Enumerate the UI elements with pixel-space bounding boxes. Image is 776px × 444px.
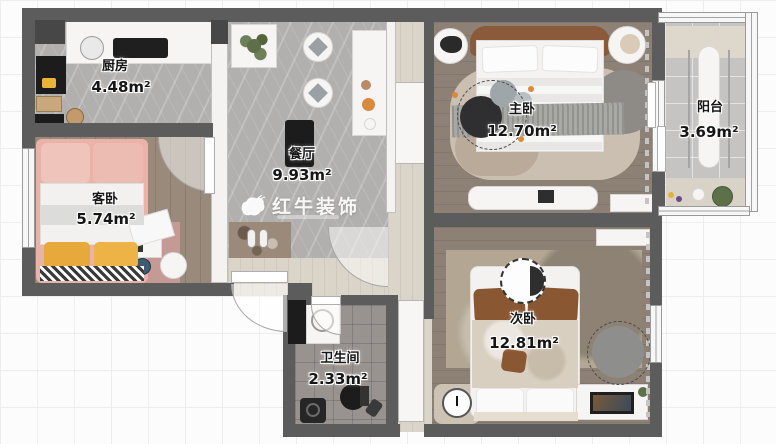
window-balcony-right — [745, 12, 758, 212]
kitchen-area: 4.48m² — [91, 78, 150, 96]
wall-master-left — [424, 22, 434, 213]
bathroom-area: 2.33m² — [308, 370, 367, 388]
slipper-icon — [247, 229, 256, 248]
balcony-toy — [668, 192, 674, 198]
entry-door-leaf — [231, 271, 288, 283]
watermark-tagline — [277, 215, 339, 219]
floor-plan: 厨房 4.48m² 餐厅 9.93m² 客卧 5.74m² 主卧 12.70m²… — [0, 0, 776, 444]
yellow-pillow — [94, 242, 138, 268]
window-balcony-top — [658, 12, 750, 23]
second-bedroom-area: 12.81m² — [489, 334, 559, 352]
balcony-toy — [676, 196, 682, 202]
wall-south-left — [22, 283, 234, 296]
master-pillow — [542, 45, 599, 73]
guest-bedroom-area: 5.74m² — [76, 210, 135, 228]
bath-door-leaf — [311, 296, 341, 305]
clock-hand — [456, 396, 458, 406]
second-bedroom-label: 次卧 — [510, 308, 536, 327]
food-plate — [361, 80, 371, 90]
wall-stub-kitchen-top — [211, 20, 228, 44]
wall-kitchen-guest — [35, 123, 213, 137]
dining-area: 9.93m² — [272, 166, 331, 184]
washer-drum — [306, 403, 320, 417]
fridge — [36, 56, 66, 94]
fridge-food — [42, 78, 56, 88]
master-bedroom-label: 主卧 — [509, 98, 535, 117]
slider-panel — [647, 82, 656, 128]
window-second-right — [650, 305, 662, 363]
tv-screen — [593, 395, 631, 411]
empty-plate — [364, 118, 376, 130]
master-pillow — [482, 45, 539, 73]
guest-bedroom-label: 客卧 — [92, 188, 118, 207]
dining-label: 餐厅 — [289, 143, 315, 162]
shag-rug-fringe — [587, 321, 651, 385]
toilet-tank — [360, 386, 369, 406]
hanging-chair — [160, 252, 187, 279]
plant-icon — [238, 30, 270, 62]
utility-closet — [398, 300, 424, 422]
bench-laptop-icon — [538, 190, 554, 203]
ac-unit — [596, 229, 650, 246]
guest-bed-pink-pillow — [93, 143, 143, 183]
yellow-pillow — [44, 242, 90, 268]
wall-second-left — [424, 227, 434, 319]
balcony-plate — [692, 188, 705, 201]
wall-second-bottom — [424, 424, 662, 437]
guest-door-leaf — [204, 137, 215, 194]
kitchen-corner-cabinet — [35, 20, 65, 44]
guest-bed-pink-pillow — [41, 143, 90, 183]
wall-bath-bottom — [283, 424, 400, 437]
window-balcony-bottom — [658, 206, 750, 216]
wall-mid-horizontal — [424, 213, 662, 227]
nightstand-pillow — [620, 34, 640, 54]
slider-panel — [657, 126, 666, 172]
wall-bath-right — [386, 303, 398, 424]
nightstand-clutter — [440, 36, 462, 53]
bath-vanity — [288, 300, 306, 344]
drying-rack-pole — [688, 50, 690, 168]
kitchen-label: 厨房 — [102, 55, 128, 74]
checker-blanket — [40, 266, 144, 281]
master-bedroom-area: 12.70m² — [487, 122, 557, 140]
wall-top — [22, 8, 662, 22]
wall-balcony-divider-top — [652, 22, 665, 80]
balcony-area: 3.69m² — [679, 123, 738, 141]
bed-bench — [468, 186, 598, 210]
bathroom-label: 卫生间 — [320, 347, 359, 366]
orange-dot — [452, 92, 458, 98]
window-guest-left — [22, 148, 35, 248]
orange-dot — [528, 86, 534, 92]
balcony-label: 阳台 — [697, 96, 723, 115]
doorframe-dining-corridor — [386, 20, 396, 213]
entry-door-arc — [231, 284, 287, 332]
brown-cushion — [501, 348, 528, 373]
kitchen-sink-icon — [80, 36, 104, 60]
bull-logo-icon — [240, 195, 266, 217]
balcony-plant-icon — [712, 186, 733, 207]
drying-rack-pole — [728, 50, 730, 168]
second-bed-footer — [474, 412, 578, 421]
kitchen-shelf — [36, 96, 62, 112]
wall-left-upper — [22, 8, 35, 150]
food-bowl — [362, 98, 375, 111]
wall-second-right-top — [650, 227, 662, 305]
slipper-icon — [259, 229, 268, 248]
